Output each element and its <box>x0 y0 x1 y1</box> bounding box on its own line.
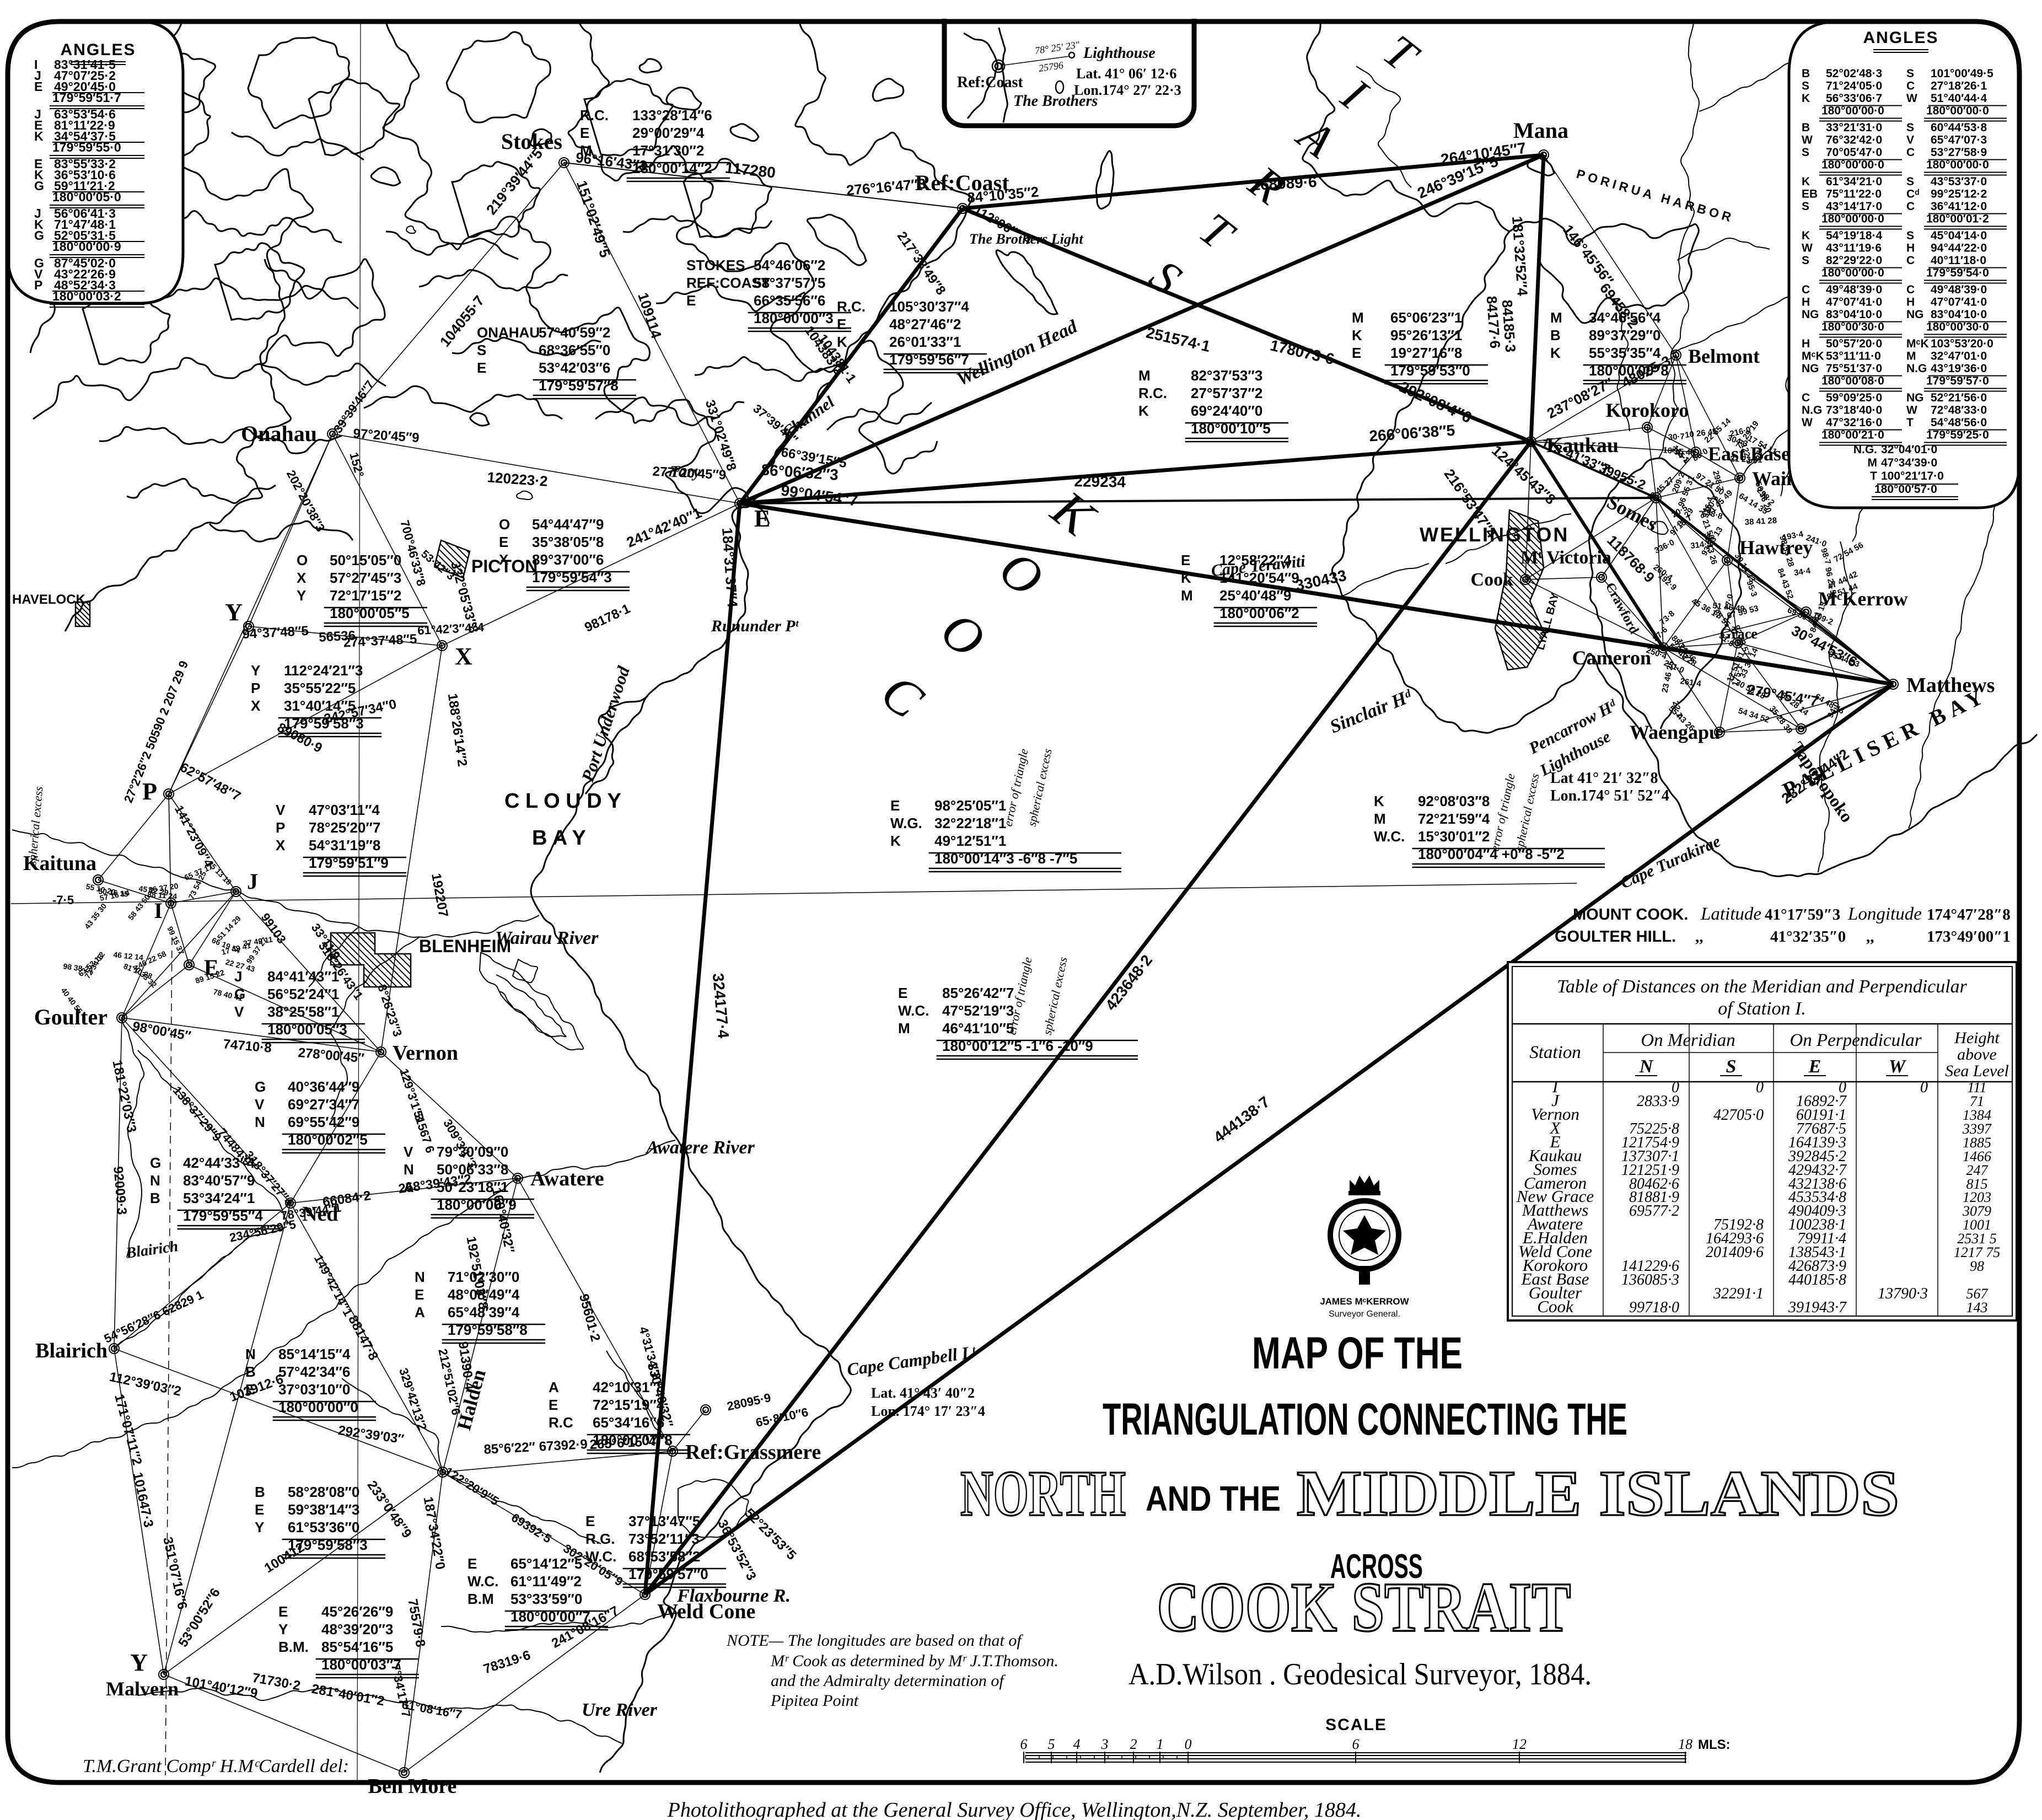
svg-text:46°41′10″5: 46°41′10″5 <box>942 1020 1014 1037</box>
svg-text:89°37′29″0: 89°37′29″0 <box>1589 327 1661 343</box>
svg-text:19°27′16″8: 19°27′16″8 <box>1390 345 1462 361</box>
svg-text:E: E <box>467 1555 477 1572</box>
svg-text:MᶜK: MᶜK <box>1906 337 1929 350</box>
svg-text:32°04′01·0: 32°04′01·0 <box>1881 443 1937 456</box>
svg-text:,,: ,, <box>1866 928 1874 946</box>
svg-text:R.G.: R.G. <box>585 1531 615 1547</box>
svg-text:N: N <box>150 1172 160 1189</box>
svg-text:NG: NG <box>1802 362 1819 375</box>
svg-text:112°24′21″3: 112°24′21″3 <box>284 662 363 679</box>
svg-text:52°02′48·3: 52°02′48·3 <box>1826 67 1882 80</box>
svg-text:W: W <box>1889 1056 1907 1077</box>
svg-text:J: J <box>234 968 242 985</box>
svg-text:2833·9: 2833·9 <box>1637 1093 1679 1110</box>
svg-text:50°57′20·0: 50°57′20·0 <box>1826 337 1882 350</box>
svg-text:K: K <box>1802 175 1810 188</box>
svg-text:B: B <box>1802 121 1810 134</box>
svg-text:P: P <box>142 778 157 805</box>
svg-text:52°21′56·0: 52°21′56·0 <box>1931 391 1987 404</box>
svg-text:K: K <box>34 129 44 143</box>
svg-text:B: B <box>1802 67 1810 80</box>
svg-text:61°53′36″0: 61°53′36″0 <box>288 1519 359 1536</box>
svg-text:E: E <box>890 797 900 814</box>
svg-text:T: T <box>1906 416 1914 429</box>
svg-text:Y: Y <box>251 662 260 679</box>
svg-text:N: N <box>1639 1056 1654 1077</box>
svg-text:The Brothers: The Brothers <box>1013 93 1098 110</box>
svg-text:Height: Height <box>1954 1029 2000 1047</box>
svg-text:43°19′36·0: 43°19′36·0 <box>1931 362 1987 375</box>
svg-text:E: E <box>1352 345 1361 361</box>
svg-text:57°42′34″6: 57°42′34″6 <box>278 1363 350 1380</box>
svg-text:180°00′00·9: 180°00′00·9 <box>52 239 121 254</box>
svg-text:103°53′20·0: 103°53′20·0 <box>1931 337 1993 350</box>
svg-text:75°51′37·0: 75°51′37·0 <box>1826 362 1882 375</box>
svg-text:180°00′30·0: 180°00′30·0 <box>1926 321 1989 334</box>
svg-text:27°18′26·1: 27°18′26·1 <box>1931 80 1987 93</box>
svg-text:Malvern: Malvern <box>106 1678 179 1700</box>
svg-text:B A Y: B A Y <box>532 826 586 850</box>
svg-text:0: 0 <box>1756 1079 1764 1096</box>
svg-text:E: E <box>837 316 846 332</box>
svg-text:S: S <box>1906 175 1914 188</box>
svg-text:43°14′17·0: 43°14′17·0 <box>1826 200 1882 213</box>
svg-text:Flaxbourne R.: Flaxbourne R. <box>676 1586 791 1606</box>
svg-text:R.C.: R.C. <box>580 107 609 124</box>
svg-text:Ure River: Ure River <box>582 1700 658 1720</box>
svg-text:58°37′57″5: 58°37′57″5 <box>754 275 825 291</box>
svg-text:Ben More: Ben More <box>368 1775 457 1798</box>
svg-text:54°19′18·4: 54°19′18·4 <box>1826 229 1883 242</box>
svg-text:S: S <box>1802 80 1809 93</box>
svg-text:54°48′56·0: 54°48′56·0 <box>1931 416 1987 429</box>
svg-text:Korokoro: Korokoro <box>1606 399 1689 421</box>
svg-text:R.C: R.C <box>549 1414 573 1431</box>
svg-text:HAVELOCK: HAVELOCK <box>12 592 86 607</box>
svg-text:H: H <box>1906 296 1915 309</box>
svg-text:E: E <box>499 534 508 550</box>
svg-text:X: X <box>251 697 261 714</box>
svg-text:E: E <box>34 79 42 94</box>
svg-text:Awatere River: Awatere River <box>645 1137 755 1158</box>
svg-text:E: E <box>255 1501 264 1518</box>
svg-text:82°29′22·0: 82°29′22·0 <box>1826 254 1882 267</box>
svg-text:49°12′51″1: 49°12′51″1 <box>934 833 1006 849</box>
svg-text:P: P <box>34 278 42 292</box>
svg-text:Rununder Pᵗ: Rununder Pᵗ <box>711 617 799 635</box>
svg-text:65°34′16″6: 65°34′16″6 <box>593 1414 664 1431</box>
svg-text:0: 0 <box>1920 1079 1928 1096</box>
svg-text:37°13′47″5: 37°13′47″5 <box>628 1513 700 1529</box>
svg-text:95°26′13″1: 95°26′13″1 <box>1390 327 1462 343</box>
svg-text:53°34′24″1: 53°34′24″1 <box>183 1190 255 1206</box>
svg-text:E: E <box>549 1397 558 1413</box>
svg-text:N.G: N.G <box>1802 404 1822 417</box>
svg-text:61°34′21·0: 61°34′21·0 <box>1826 175 1882 188</box>
svg-text:W: W <box>1802 416 1813 429</box>
svg-text:C: C <box>1906 146 1915 159</box>
svg-text:76°32′42·0: 76°32′42·0 <box>1826 134 1882 147</box>
svg-text:MAP OF THE: MAP OF THE <box>1252 1328 1463 1378</box>
svg-text:180°00′21·0: 180°00′21·0 <box>1821 429 1884 442</box>
svg-text:K: K <box>1374 793 1384 809</box>
svg-text:E: E <box>686 292 696 309</box>
svg-text:6: 6 <box>1020 1736 1028 1752</box>
svg-text:E: E <box>898 985 907 1001</box>
svg-text:N: N <box>245 1346 256 1362</box>
svg-text:E: E <box>278 1603 288 1620</box>
svg-text:Table of Distances on the Meri: Table of Distances on the Meridian and P… <box>1557 976 1968 997</box>
svg-text:C: C <box>1906 80 1915 93</box>
svg-text:K: K <box>1550 345 1561 361</box>
svg-text:143: 143 <box>1966 1300 1988 1316</box>
svg-text:Goulter: Goulter <box>34 1005 108 1029</box>
svg-text:92°08′03″8: 92°08′03″8 <box>1418 793 1490 809</box>
svg-text:A: A <box>415 1304 425 1320</box>
svg-text:G: G <box>34 179 44 193</box>
svg-text:K: K <box>1181 570 1191 586</box>
svg-text:B.M.: B.M. <box>278 1639 309 1655</box>
svg-text:54°31′19″8: 54°31′19″8 <box>309 837 380 853</box>
svg-text:Y: Y <box>225 599 243 626</box>
svg-text:Latitude: Latitude <box>1700 904 1761 924</box>
svg-text:43°53′37·0: 43°53′37·0 <box>1931 175 1987 188</box>
svg-text:G: G <box>34 228 44 243</box>
svg-text:25°40′48″9: 25°40′48″9 <box>1219 587 1291 604</box>
svg-text:35°38′05″8: 35°38′05″8 <box>532 534 604 550</box>
svg-text:M: M <box>1181 587 1193 604</box>
svg-text:89°37′00″6: 89°37′00″6 <box>532 551 604 568</box>
svg-text:70°05′47·0: 70°05′47·0 <box>1826 146 1882 159</box>
svg-text:M: M <box>1906 350 1916 363</box>
svg-text:85°54′16″5: 85°54′16″5 <box>321 1639 393 1655</box>
svg-text:M: M <box>1868 457 1878 469</box>
svg-text:K: K <box>1802 229 1810 242</box>
svg-text:B: B <box>1550 327 1561 343</box>
svg-text:Cᵈ: Cᵈ <box>1906 188 1919 201</box>
svg-text:TRIANGULATION CONNECTING THE: TRIANGULATION CONNECTING THE <box>1103 1394 1627 1445</box>
svg-text:47°34′39·0: 47°34′39·0 <box>1881 457 1937 469</box>
svg-text:136085·3: 136085·3 <box>1621 1271 1679 1289</box>
svg-text:40°36′44″9: 40°36′44″9 <box>288 1078 359 1095</box>
svg-text:3: 3 <box>1101 1736 1109 1752</box>
svg-text:12: 12 <box>1512 1736 1527 1752</box>
svg-text:E: E <box>477 359 486 376</box>
svg-text:65°47′07·3: 65°47′07·3 <box>1931 134 1987 147</box>
svg-text:S: S <box>1802 254 1809 267</box>
svg-text:56°52′24″1: 56°52′24″1 <box>267 986 339 1002</box>
svg-text:55°35′35″4: 55°35′35″4 <box>1589 345 1661 361</box>
svg-text:57°27′45″3: 57°27′45″3 <box>330 570 401 586</box>
svg-text:58°28′08″0: 58°28′08″0 <box>288 1484 359 1500</box>
svg-text:30·7: 30·7 <box>1668 432 1685 442</box>
svg-text:Lon. 174° 17′ 23″4: Lon. 174° 17′ 23″4 <box>871 1403 985 1419</box>
svg-text:K: K <box>890 833 901 849</box>
svg-text:51°40′44·4: 51°40′44·4 <box>1931 92 1987 105</box>
svg-text:Sea Level: Sea Level <box>1945 1062 2009 1080</box>
svg-text:MᶜK: MᶜK <box>1802 350 1824 363</box>
svg-text:SCALE: SCALE <box>1325 1716 1387 1734</box>
svg-text:75°11′22·0: 75°11′22·0 <box>1826 188 1882 201</box>
svg-text:M: M <box>898 1020 910 1037</box>
svg-text:On Perpendicular: On Perpendicular <box>1790 1030 1921 1050</box>
svg-text:above: above <box>1957 1045 1997 1064</box>
svg-text:T.M.Grant Compʳ H.MᶜCardell d: T.M.Grant Compʳ H.MᶜCardell del: <box>83 1756 349 1776</box>
svg-text:47°32′16·0: 47°32′16·0 <box>1826 416 1882 429</box>
svg-text:K: K <box>1352 327 1362 343</box>
svg-text:X: X <box>455 643 472 670</box>
svg-text:E: E <box>754 505 770 532</box>
svg-text:E: E <box>1808 1056 1821 1077</box>
svg-text:W: W <box>1906 404 1917 417</box>
svg-text:C: C <box>1906 283 1915 296</box>
svg-text:K: K <box>1802 92 1810 105</box>
svg-text:99718·0: 99718·0 <box>1629 1299 1679 1316</box>
svg-text:180°00′00·0: 180°00′00·0 <box>1821 105 1884 117</box>
svg-text:W.C.: W.C. <box>1374 828 1405 845</box>
svg-text:47°03′11″4: 47°03′11″4 <box>309 802 380 818</box>
svg-text:98: 98 <box>1970 1258 1984 1274</box>
svg-text:47°07′41·0: 47°07′41·0 <box>1931 296 1987 309</box>
svg-text:R.C.: R.C. <box>1138 385 1167 401</box>
svg-text:NG: NG <box>1906 391 1924 404</box>
svg-text:17°31′30″2: 17°31′30″2 <box>632 142 704 159</box>
svg-text:53°11′11·0: 53°11′11·0 <box>1826 350 1881 363</box>
svg-text:S: S <box>477 342 486 358</box>
svg-text:W.C.: W.C. <box>898 1002 929 1019</box>
svg-text:Longitude: Longitude <box>1847 904 1922 924</box>
svg-text:71°24′05·0: 71°24′05·0 <box>1826 80 1882 93</box>
svg-text:49°48′39·0: 49°48′39·0 <box>1826 283 1882 296</box>
svg-text:Blairich: Blairich <box>35 1339 108 1362</box>
svg-text:S: S <box>1906 229 1914 242</box>
svg-text:MOUNT COOK.: MOUNT COOK. <box>1573 906 1688 924</box>
svg-text:38°25′58″1: 38°25′58″1 <box>267 1003 339 1020</box>
svg-text:W: W <box>1802 134 1813 147</box>
svg-text:N: N <box>415 1269 425 1285</box>
svg-text:O: O <box>499 516 510 533</box>
svg-text:A: A <box>549 1379 559 1395</box>
svg-text:H: H <box>1802 337 1810 350</box>
svg-text:53°33′59″0: 53°33′59″0 <box>511 1591 582 1607</box>
svg-text:NG: NG <box>1906 308 1924 321</box>
svg-text:K: K <box>1138 402 1149 419</box>
svg-text:180°00′00·0: 180°00′00·0 <box>1821 159 1884 171</box>
svg-text:P: P <box>276 819 285 836</box>
svg-text:of Station I.: of Station I. <box>1718 998 1806 1019</box>
svg-text:Ref:Coast: Ref:Coast <box>957 74 1023 91</box>
svg-text:48°27′46″2: 48°27′46″2 <box>889 316 961 332</box>
svg-text:33°21′31·0: 33°21′31·0 <box>1826 121 1882 134</box>
svg-text:S: S <box>1726 1056 1737 1077</box>
svg-text:C: C <box>1906 254 1915 267</box>
svg-text:180°00′03·2: 180°00′03·2 <box>52 289 121 303</box>
svg-text:N: N <box>404 1161 414 1178</box>
svg-text:Awatere: Awatere <box>530 1167 604 1190</box>
svg-text:E: E <box>1181 552 1190 568</box>
svg-text:Photolithographed at the Gener: Photolithographed at the General Survey … <box>667 1798 1362 1820</box>
svg-text:C: C <box>1802 283 1810 296</box>
svg-text:56536: 56536 <box>319 628 356 645</box>
svg-text:2: 2 <box>1130 1736 1137 1752</box>
svg-text:173°49′00″1: 173°49′00″1 <box>1927 928 2011 946</box>
svg-text:JAMES MᶜKERROW: JAMES MᶜKERROW <box>1320 1296 1409 1307</box>
svg-text:29°00′29″4: 29°00′29″4 <box>632 125 705 141</box>
svg-text:47°07′41·0: 47°07′41·0 <box>1826 296 1882 309</box>
svg-text:Surveyor General.: Surveyor General. <box>1329 1309 1400 1319</box>
svg-text:32°22′18″1: 32°22′18″1 <box>934 815 1006 831</box>
svg-text:42705·0: 42705·0 <box>1713 1107 1764 1124</box>
svg-text:73°52′11″3: 73°52′11″3 <box>628 1531 700 1547</box>
svg-text:229234: 229234 <box>1074 473 1126 491</box>
svg-text:Pipitea Point: Pipitea Point <box>770 1692 859 1710</box>
svg-text:G: G <box>255 1078 266 1095</box>
svg-text:Cook: Cook <box>1537 1297 1574 1316</box>
svg-text:168089·6: 168089·6 <box>1251 173 1318 194</box>
svg-text:66°35′56″6: 66°35′56″6 <box>754 292 825 309</box>
svg-text:Station: Station <box>1529 1043 1581 1062</box>
svg-text:174°47′28″8: 174°47′28″8 <box>1927 906 2011 924</box>
svg-text:141°20′54″9: 141°20′54″9 <box>1219 570 1299 586</box>
svg-text:48°39′20″3: 48°39′20″3 <box>321 1621 393 1638</box>
svg-text:180°00′01·2: 180°00′01·2 <box>1926 213 1989 226</box>
svg-text:69°27′34″7: 69°27′34″7 <box>288 1096 359 1113</box>
svg-text:P: P <box>251 680 260 696</box>
svg-text:69577·2: 69577·2 <box>1629 1202 1679 1220</box>
svg-text:Ref:Grassmere: Ref:Grassmere <box>685 1441 821 1464</box>
svg-text:105°30′37″4: 105°30′37″4 <box>889 298 969 315</box>
svg-text:59°09′25·0: 59°09′25·0 <box>1826 391 1882 404</box>
svg-text:M: M <box>1374 810 1386 827</box>
svg-text:0: 0 <box>1185 1736 1192 1752</box>
svg-text:Lighthouse: Lighthouse <box>1083 45 1156 62</box>
svg-text:78°25′20″7: 78°25′20″7 <box>309 819 380 836</box>
svg-text:Y: Y <box>297 587 306 604</box>
svg-text:S: S <box>1906 121 1914 134</box>
svg-text:37°03′10″0: 37°03′10″0 <box>278 1381 350 1398</box>
svg-text:72°48′33·0: 72°48′33·0 <box>1931 404 1987 417</box>
svg-text:B: B <box>255 1484 265 1500</box>
svg-text:Lat. 41° 43′ 40″2: Lat. 41° 43′ 40″2 <box>871 1385 975 1401</box>
svg-text:60°44′53·8: 60°44′53·8 <box>1931 121 1987 134</box>
svg-text:72°17′15″2: 72°17′15″2 <box>330 587 401 604</box>
svg-text:COOK STRAIT: COOK STRAIT <box>1157 1568 1571 1646</box>
svg-text:41°17′59″3: 41°17′59″3 <box>1765 906 1840 924</box>
svg-text:85°26′42″7: 85°26′42″7 <box>942 985 1014 1001</box>
svg-text:13790·3: 13790·3 <box>1878 1285 1928 1302</box>
svg-text:M: M <box>1352 309 1364 326</box>
svg-text:133°28′14″6: 133°28′14″6 <box>632 107 712 124</box>
svg-text:36°41′12·0: 36°41′12·0 <box>1931 200 1987 213</box>
svg-text:E: E <box>415 1286 424 1303</box>
svg-text:On Meridian: On Meridian <box>1641 1030 1735 1050</box>
svg-text:43°11′19·6: 43°11′19·6 <box>1826 242 1882 255</box>
svg-text:N.G: N.G <box>1906 362 1927 375</box>
svg-text:I: I <box>154 898 163 923</box>
svg-text:W: W <box>1906 92 1917 105</box>
svg-text:Hawtrey: Hawtrey <box>1739 536 1813 559</box>
svg-text:38 41 28: 38 41 28 <box>1744 516 1777 527</box>
svg-text:99°25′12·2: 99°25′12·2 <box>1931 188 1987 201</box>
svg-text:S: S <box>1906 67 1914 80</box>
svg-text:47°52′19″3: 47°52′19″3 <box>942 1002 1014 1019</box>
svg-text:ANGLES: ANGLES <box>1863 29 1938 47</box>
svg-text:54°46′06″2: 54°46′06″2 <box>754 257 825 273</box>
svg-text:Mʳ Cook as determined by Mʳ J.: Mʳ Cook as determined by Mʳ J.T.Thomson. <box>770 1652 1058 1670</box>
svg-text:E: E <box>585 1513 595 1529</box>
svg-text:179°59′51·7: 179°59′51·7 <box>52 90 121 105</box>
svg-text:53°42′03″6: 53°42′03″6 <box>539 359 610 376</box>
svg-text:68°36′55″0: 68°36′55″0 <box>539 342 610 358</box>
svg-text:S: S <box>1802 146 1809 159</box>
svg-text:49°48′39·0: 49°48′39·0 <box>1931 283 1987 296</box>
svg-text:35°55′22″5: 35°55′22″5 <box>284 680 356 696</box>
svg-text:Onahau: Onahau <box>241 421 317 446</box>
svg-text:180°00′00·0: 180°00′00·0 <box>1926 105 1989 117</box>
svg-text:54°44′47″9: 54°44′47″9 <box>532 516 604 533</box>
svg-text:X: X <box>276 837 286 853</box>
svg-text:32291·1: 32291·1 <box>1713 1285 1764 1302</box>
svg-text:N.G.: N.G. <box>1853 443 1877 456</box>
svg-text:72°21′59″4: 72°21′59″4 <box>1418 810 1490 827</box>
svg-text:X: X <box>297 570 307 586</box>
svg-text:-7·5: -7·5 <box>52 893 74 907</box>
svg-text:12°58′22″4: 12°58′22″4 <box>1219 552 1292 568</box>
svg-text:180°00′00·0: 180°00′00·0 <box>1821 213 1884 226</box>
svg-text:,,: ,, <box>1695 928 1704 946</box>
svg-text:E: E <box>580 125 589 141</box>
svg-text:180°00′57·0: 180°00′57·0 <box>1874 483 1937 496</box>
svg-text:101°00′49·5: 101°00′49·5 <box>1931 67 1993 80</box>
svg-text:83°04′10·0: 83°04′10·0 <box>1931 308 1987 321</box>
svg-text:W.G.: W.G. <box>890 815 922 831</box>
svg-text:W.C.: W.C. <box>467 1573 498 1590</box>
svg-text:6: 6 <box>1352 1736 1359 1752</box>
svg-text:83°04′10·0: 83°04′10·0 <box>1826 308 1882 321</box>
svg-text:T: T <box>1870 470 1877 482</box>
svg-text:69°55′42″9: 69°55′42″9 <box>288 1114 359 1130</box>
svg-text:391943·7: 391943·7 <box>1788 1299 1847 1316</box>
svg-text:84°41′43″1: 84°41′43″1 <box>267 968 339 985</box>
svg-text:C: C <box>1802 391 1810 404</box>
svg-text:V: V <box>1906 134 1914 147</box>
svg-text:C: C <box>1906 200 1915 213</box>
svg-text:4: 4 <box>1073 1736 1081 1752</box>
svg-text:R.C.: R.C. <box>837 298 866 315</box>
svg-text:5: 5 <box>1048 1736 1055 1752</box>
svg-text:ONAHAU: ONAHAU <box>477 324 540 341</box>
svg-text:C L O U D Y: C L O U D Y <box>504 790 621 813</box>
svg-text:179°59′55·0: 179°59′55·0 <box>52 140 121 154</box>
svg-text:V: V <box>255 1096 265 1113</box>
svg-text:41°32′35″0: 41°32′35″0 <box>1770 928 1846 946</box>
svg-text:NOTE— The longitudes are based: NOTE— The longitudes are based on that o… <box>726 1631 1023 1650</box>
svg-text:Mᵗ Victoria: Mᵗ Victoria <box>1520 547 1611 568</box>
svg-text:B: B <box>245 1363 256 1380</box>
svg-text:Y: Y <box>255 1519 264 1536</box>
svg-text:Vernon: Vernon <box>393 1041 458 1065</box>
svg-text:A.D.Wilson . Geodesical Survey: A.D.Wilson . Geodesical Surveyor, 1884. <box>1129 1657 1592 1692</box>
svg-text:Cameron: Cameron <box>1572 647 1651 669</box>
svg-text:S: S <box>1802 200 1809 213</box>
svg-text:180°00′08·0: 180°00′08·0 <box>1821 375 1884 388</box>
svg-text:59°38′14″3: 59°38′14″3 <box>288 1501 359 1518</box>
svg-text:65°06′23″1: 65°06′23″1 <box>1390 309 1462 326</box>
svg-text:15°30′01″2: 15°30′01″2 <box>1418 828 1490 845</box>
svg-text:H: H <box>1802 296 1810 309</box>
svg-text:57°40′59″2: 57°40′59″2 <box>539 324 610 341</box>
svg-text:B.M: B.M <box>467 1591 494 1607</box>
